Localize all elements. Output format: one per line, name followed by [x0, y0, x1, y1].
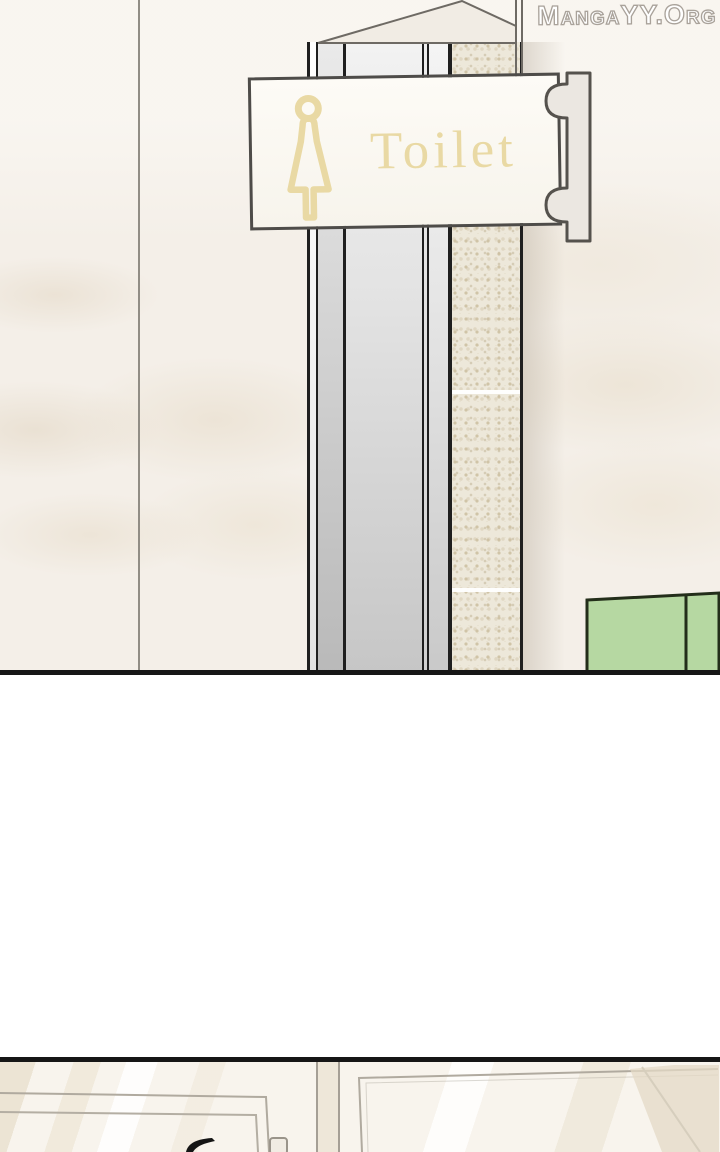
female-figure-icon — [278, 91, 340, 224]
toilet-sign: Toilet — [248, 73, 562, 231]
manga-page: { "watermark": { "text": "MangaYY.Org", … — [0, 0, 720, 1152]
mirror-lines — [0, 1062, 720, 1152]
hair-silhouette — [186, 1138, 215, 1152]
watermark: MangaYY.Org — [536, 0, 716, 32]
wall-strip — [317, 1062, 339, 1152]
mirror-frame-left-outer — [0, 1093, 269, 1152]
green-cabinet-body — [587, 593, 719, 674]
green-cabinet — [587, 593, 719, 674]
panel-toilet-entrance: Toilet — [0, 0, 720, 675]
mirror-frame-left-inner — [0, 1112, 258, 1152]
mirror-clip — [270, 1138, 287, 1152]
panel-mirror-closeup — [0, 1062, 720, 1152]
toilet-sign-label: Toilet — [370, 120, 518, 181]
glass-reflection-band — [630, 1065, 719, 1152]
panel1-bottom-border — [0, 670, 720, 675]
lintel-top-face — [318, 1, 516, 43]
sign-mount-bracket — [543, 70, 595, 244]
